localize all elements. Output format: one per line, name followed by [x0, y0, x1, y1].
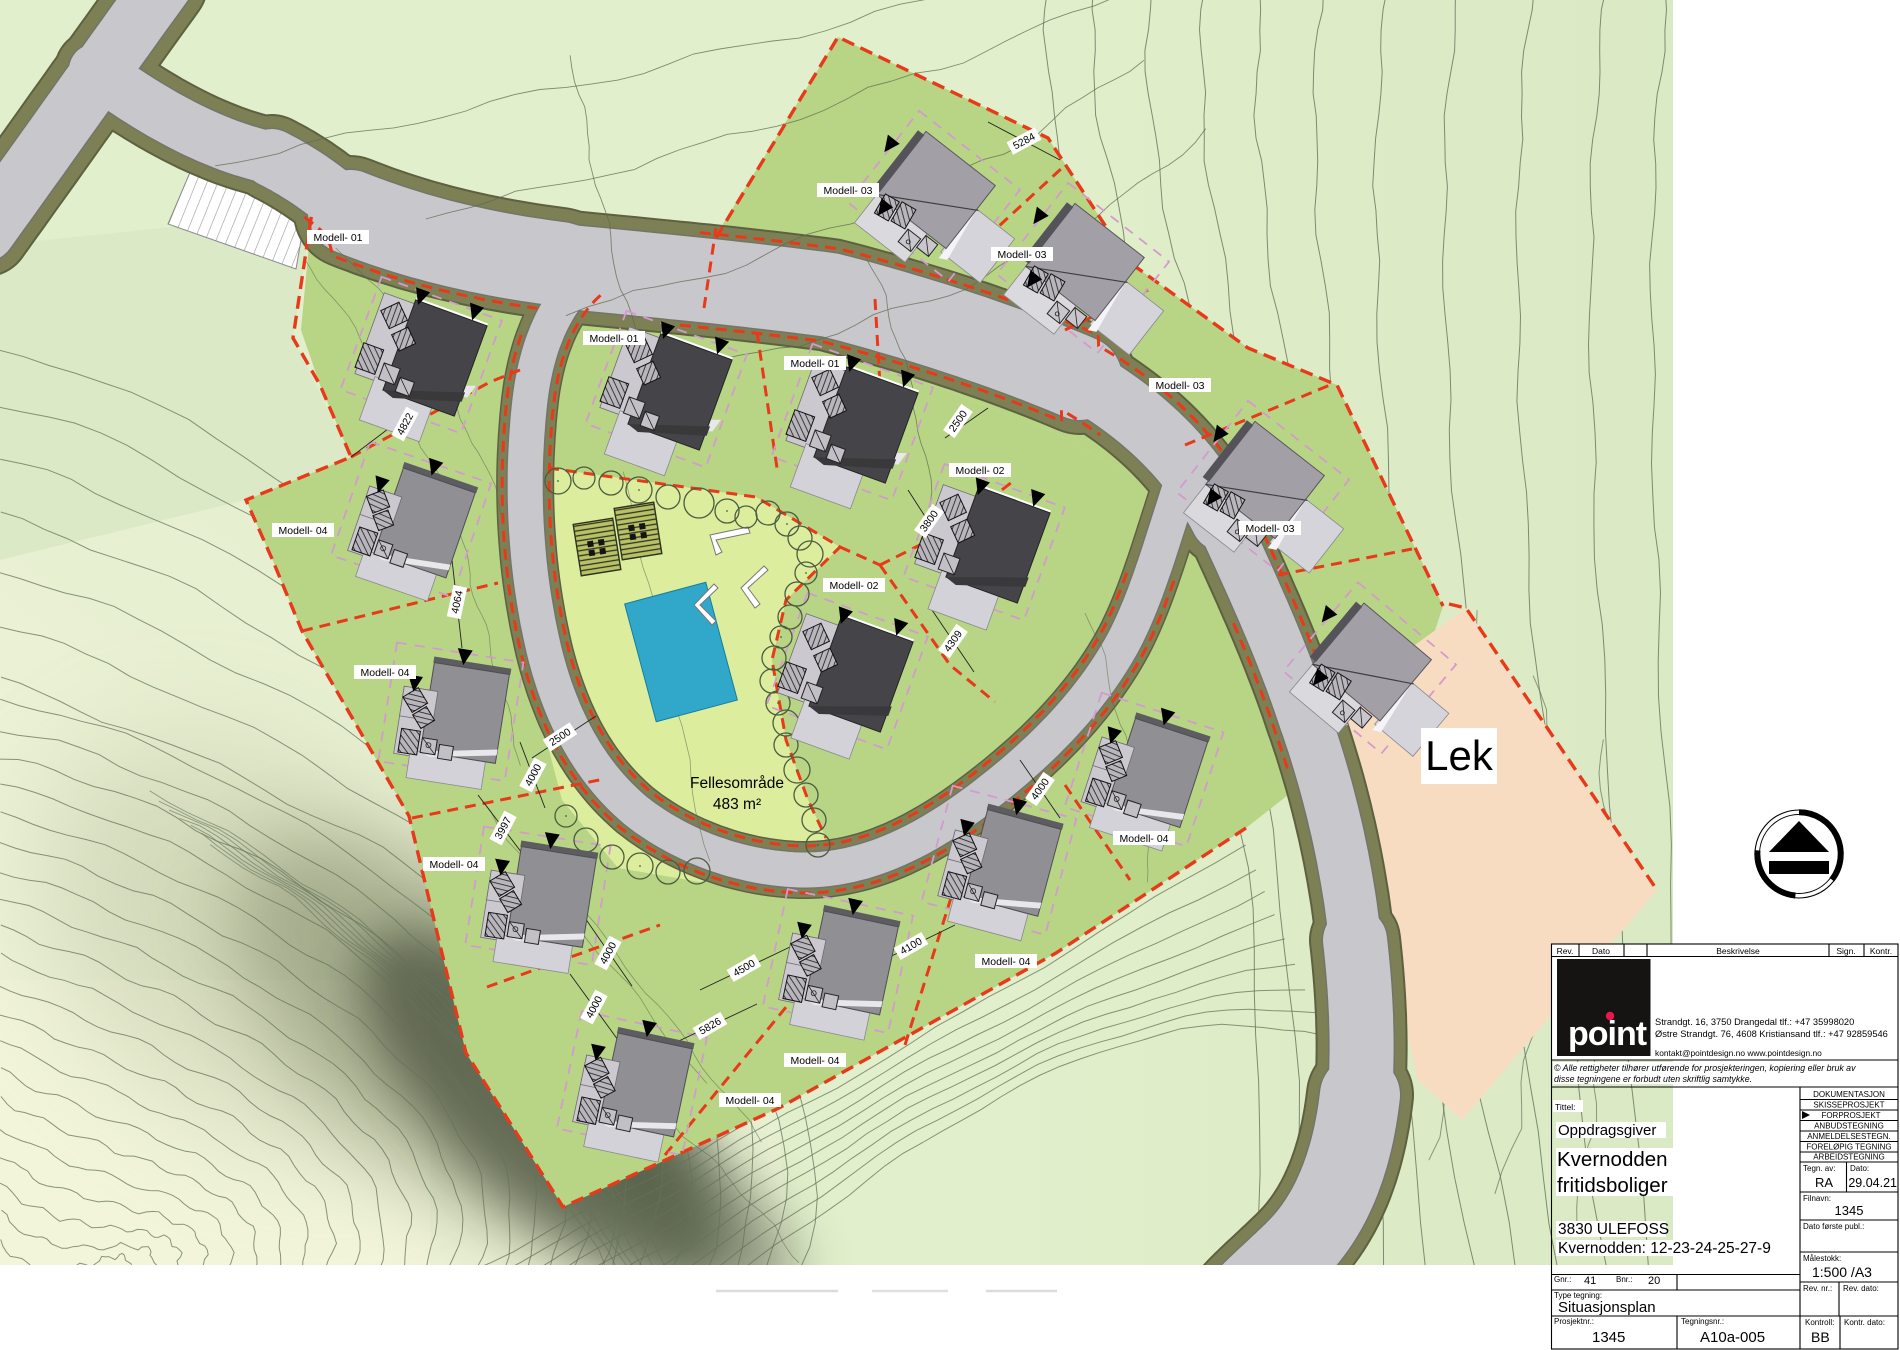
- svg-text:Situasjonsplan: Situasjonsplan: [1558, 1299, 1656, 1316]
- svg-text:Prosjektnr.:: Prosjektnr.:: [1554, 1317, 1594, 1326]
- svg-text:Kvernodden: 12-23-24-25-27-9: Kvernodden: 12-23-24-25-27-9: [1558, 1240, 1771, 1257]
- svg-text:ARBEIDSTEGNING: ARBEIDSTEGNING: [1813, 1153, 1885, 1162]
- svg-text:Modell- 03: Modell- 03: [997, 249, 1046, 261]
- svg-text:29.04.21: 29.04.21: [1848, 1176, 1897, 1190]
- svg-text:SKISSEPROSJEKT: SKISSEPROSJEKT: [1813, 1101, 1884, 1110]
- svg-text:Dato: Dato: [1592, 946, 1610, 956]
- svg-text:FORPROSJEKT: FORPROSJEKT: [1821, 1111, 1880, 1120]
- svg-text:Østre Strandgt. 76, 4608 Krist: Østre Strandgt. 76, 4608 Kristiansand tl…: [1655, 1029, 1888, 1039]
- svg-text:41: 41: [1584, 1275, 1596, 1287]
- svg-text:FORELØPIG TEGNING: FORELØPIG TEGNING: [1806, 1143, 1891, 1152]
- svg-text:Modell- 04: Modell- 04: [790, 1055, 839, 1067]
- svg-text:Tittel:: Tittel:: [1555, 1102, 1575, 1112]
- svg-text:Modell- 01: Modell- 01: [313, 232, 362, 244]
- svg-text:kontakt@pointdesign.no www.poi: kontakt@pointdesign.no www.pointdesign.n…: [1655, 1048, 1822, 1058]
- svg-text:20: 20: [1648, 1275, 1660, 1287]
- svg-text:Filnavn:: Filnavn:: [1803, 1194, 1831, 1203]
- svg-text:Oppdragsgiver: Oppdragsgiver: [1558, 1122, 1656, 1139]
- svg-text:Rev. dato:: Rev. dato:: [1843, 1284, 1879, 1293]
- svg-text:Modell- 03: Modell- 03: [823, 185, 872, 197]
- svg-text:Målestokk:: Målestokk:: [1803, 1254, 1841, 1263]
- svg-text:Modell- 04: Modell- 04: [278, 525, 327, 537]
- svg-text:point: point: [1568, 1015, 1647, 1053]
- svg-text:disse tegningene er forbudt ut: disse tegningene er forbudt uten skriftl…: [1554, 1074, 1752, 1084]
- svg-text:Kontr. dato:: Kontr. dato:: [1844, 1318, 1885, 1327]
- svg-text:© Alle rettigheter tilhører ut: © Alle rettigheter tilhører utførende fo…: [1554, 1063, 1856, 1073]
- svg-text:483 m²: 483 m²: [713, 796, 761, 813]
- svg-text:1:500 /A3: 1:500 /A3: [1812, 1264, 1872, 1280]
- svg-text:Kontr.: Kontr.: [1870, 946, 1892, 956]
- svg-text:ANBUDSTEGNING: ANBUDSTEGNING: [1814, 1122, 1884, 1131]
- svg-text:Gnr.:: Gnr.:: [1554, 1275, 1571, 1284]
- svg-text:1345: 1345: [1592, 1329, 1625, 1346]
- svg-text:Dato første publ.:: Dato første publ.:: [1803, 1222, 1864, 1231]
- svg-text:Modell- 04: Modell- 04: [725, 1095, 774, 1107]
- svg-text:Modell- 01: Modell- 01: [589, 333, 638, 345]
- svg-text:Modell- 02: Modell- 02: [955, 465, 1004, 477]
- svg-text:Sign.: Sign.: [1836, 946, 1855, 956]
- svg-text:DOKUMENTASJON: DOKUMENTASJON: [1813, 1090, 1885, 1099]
- svg-text:Lek: Lek: [1425, 732, 1494, 779]
- svg-text:Modell- 04: Modell- 04: [429, 859, 478, 871]
- svg-text:Fellesområde: Fellesområde: [690, 775, 784, 792]
- svg-text:Modell- 03: Modell- 03: [1245, 523, 1294, 535]
- svg-text:Modell- 01: Modell- 01: [790, 358, 839, 370]
- svg-text:Modell- 04: Modell- 04: [360, 667, 409, 679]
- svg-text:Beskrivelse: Beskrivelse: [1716, 946, 1760, 956]
- svg-text:RA: RA: [1815, 1175, 1833, 1190]
- svg-text:Rev.: Rev.: [1557, 946, 1574, 956]
- svg-text:Tegn. av:: Tegn. av:: [1803, 1164, 1835, 1173]
- svg-text:Rev. nr.:: Rev. nr.:: [1803, 1284, 1832, 1293]
- svg-text:Modell- 03: Modell- 03: [1155, 380, 1204, 392]
- svg-text:Modell- 04: Modell- 04: [1119, 833, 1168, 845]
- svg-text:Tegningsnr.:: Tegningsnr.:: [1681, 1317, 1724, 1326]
- svg-text:BB: BB: [1811, 1329, 1830, 1345]
- svg-text:3830 ULEFOSS: 3830 ULEFOSS: [1558, 1221, 1669, 1238]
- svg-text:Kontroll:: Kontroll:: [1805, 1318, 1834, 1327]
- svg-text:Kvernodden: Kvernodden: [1557, 1148, 1668, 1171]
- svg-text:A10a-005: A10a-005: [1700, 1329, 1765, 1346]
- svg-text:1345: 1345: [1835, 1203, 1864, 1218]
- svg-text:Bnr.:: Bnr.:: [1616, 1275, 1632, 1284]
- svg-text:Dato:: Dato:: [1850, 1164, 1869, 1173]
- svg-text:fritidsboliger: fritidsboliger: [1557, 1174, 1668, 1197]
- svg-text:Strandgt. 16, 3750 Drangedal t: Strandgt. 16, 3750 Drangedal tlf.: +47 3…: [1655, 1017, 1854, 1027]
- svg-text:ANMELDELSESTEGN.: ANMELDELSESTEGN.: [1807, 1132, 1891, 1141]
- svg-text:Modell- 04: Modell- 04: [981, 956, 1030, 968]
- svg-text:Modell- 02: Modell- 02: [829, 580, 878, 592]
